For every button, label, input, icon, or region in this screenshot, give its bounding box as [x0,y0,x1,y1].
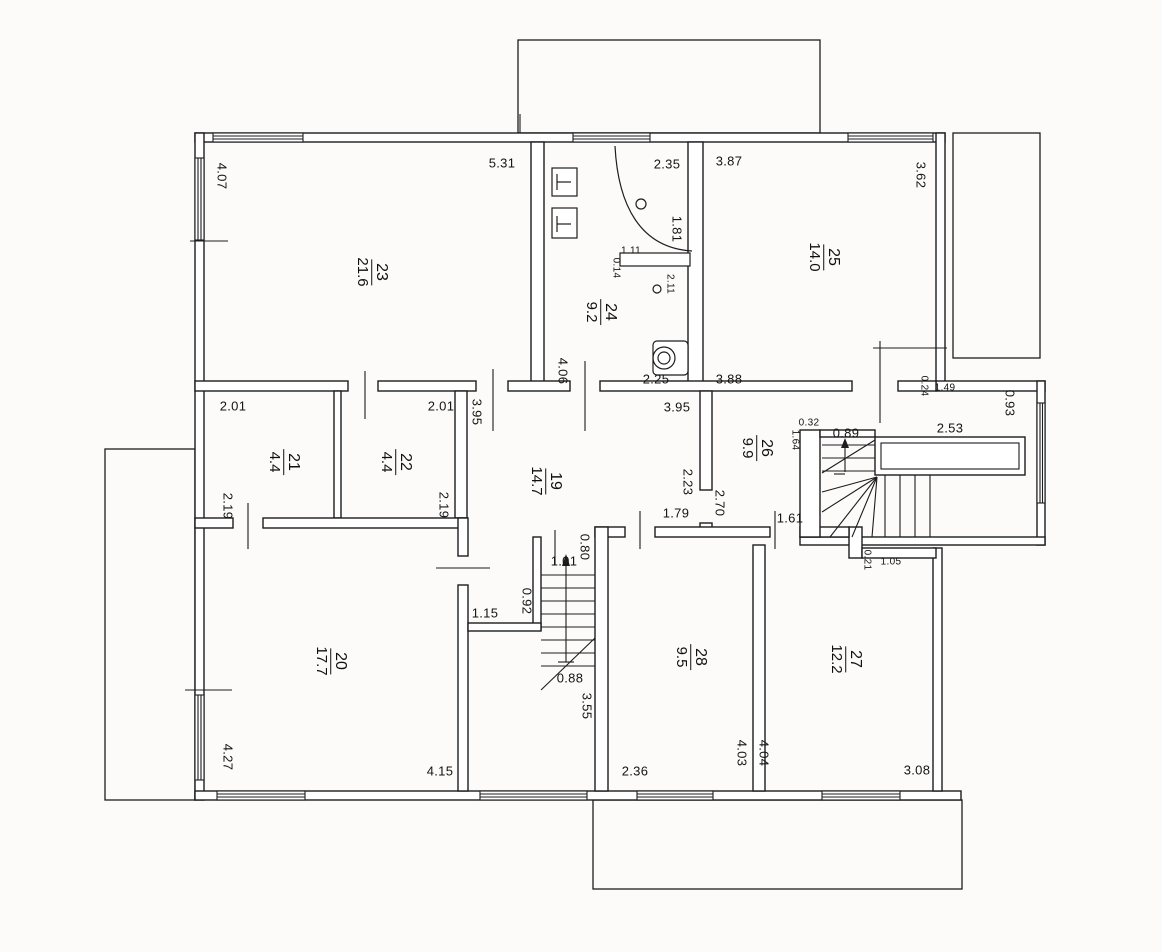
stair-direction-arrow [834,438,849,474]
balcony-left-outline [105,449,195,800]
toilet-icon [653,341,688,375]
main-staircase [822,437,1025,537]
stair-direction-arrow [558,554,574,662]
radiator-icon [552,208,577,238]
bathroom-fixtures [552,146,692,375]
door-knob-icon [636,199,646,209]
terrace-top-outline [518,40,820,133]
floor-plan-canvas: 2321.6249.22514.0214.4224.41914.7269.920… [0,0,1162,952]
pipe-icon [653,285,661,293]
floor-plan-drawing [0,0,1162,952]
interior-walls [195,142,936,791]
door-swing-arc [615,146,692,251]
terrace-bottom-outline [593,800,962,889]
balcony-right-outline [953,133,1040,358]
wall-ledge [620,253,690,266]
radiator-icon [552,168,577,196]
secondary-staircase [541,554,595,690]
